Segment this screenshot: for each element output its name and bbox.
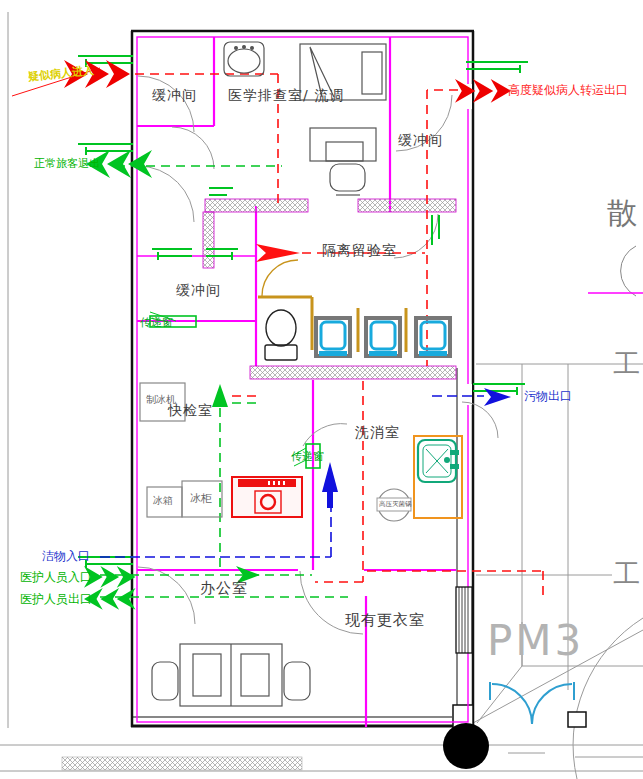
flow-label-waste-exit: 污物出口 [524,390,572,402]
room-label-buffer-top-left: 缓冲间 [152,88,197,102]
office-desks-chairs [152,644,310,706]
red-appliance [232,477,302,517]
bottom-hatch-strip [62,757,302,770]
equip-label-ice-machine: 制冰机 [146,395,176,405]
blue-double-door [490,682,574,724]
pass-window-lower-label: 传递窗 [291,451,324,462]
red-arrow-isolation [256,244,300,262]
floorplan-canvas: 缓冲间 医学排查室/ 流调 缓冲间 隔离留验室 缓冲间 快检室 洗消室 办公室 … [0,0,643,779]
flow-label-staff-exit: 医护人员出口 [20,593,92,605]
room-label-medical-screening: 医学排查室/ 流调 [228,88,344,102]
annotation-steel-beam-2: 工 [613,560,640,587]
flow-label-clean-entry: 洁物入口 [42,550,90,562]
sink-screening-room [224,42,264,76]
room-label-isolation: 隔离留验室 [322,243,397,257]
desk-and-chair-screening [310,128,376,195]
room-label-buffer-mid-left: 缓冲间 [176,283,221,297]
room-label-rapid-test: 快检室 [168,403,213,417]
annotation-pm3: PM3 [487,620,584,662]
green-arrow-up-rapidtest [212,384,228,407]
room-label-office: 办公室 [200,581,248,596]
equip-label-fridge: 冰箱 [153,496,173,506]
suspected-route-dashed [135,74,543,600]
pass-window-upper-label: 传递窗 [140,317,173,328]
room-label-changing: 现有更衣室 [345,613,425,628]
room-label-buffer-top-right: 缓冲间 [398,133,443,147]
waiting-chairs [316,318,450,356]
column-marker-dot [443,723,489,769]
annotation-steel-beam-1: 工 [613,350,640,377]
toilet-stall-partition [258,260,406,352]
equip-label-autoclave: 高压灭菌锅 [379,501,412,508]
equip-label-freezer: 冰柜 [190,493,212,504]
blue-arrow-up-passwindow [322,462,338,508]
wash-sink-counter [414,436,462,518]
radiator-lockers [456,587,472,653]
annotation-san: 散 [607,198,637,228]
toilet [265,310,297,360]
flow-label-transfer-exit: 高度疑似病人转运出口 [508,84,628,96]
flow-label-staff-entry: 医护人员入口 [20,571,92,583]
room-label-wash: 洗消室 [355,425,400,439]
flow-label-normal-exit: 正常旅客退出 [34,158,100,169]
